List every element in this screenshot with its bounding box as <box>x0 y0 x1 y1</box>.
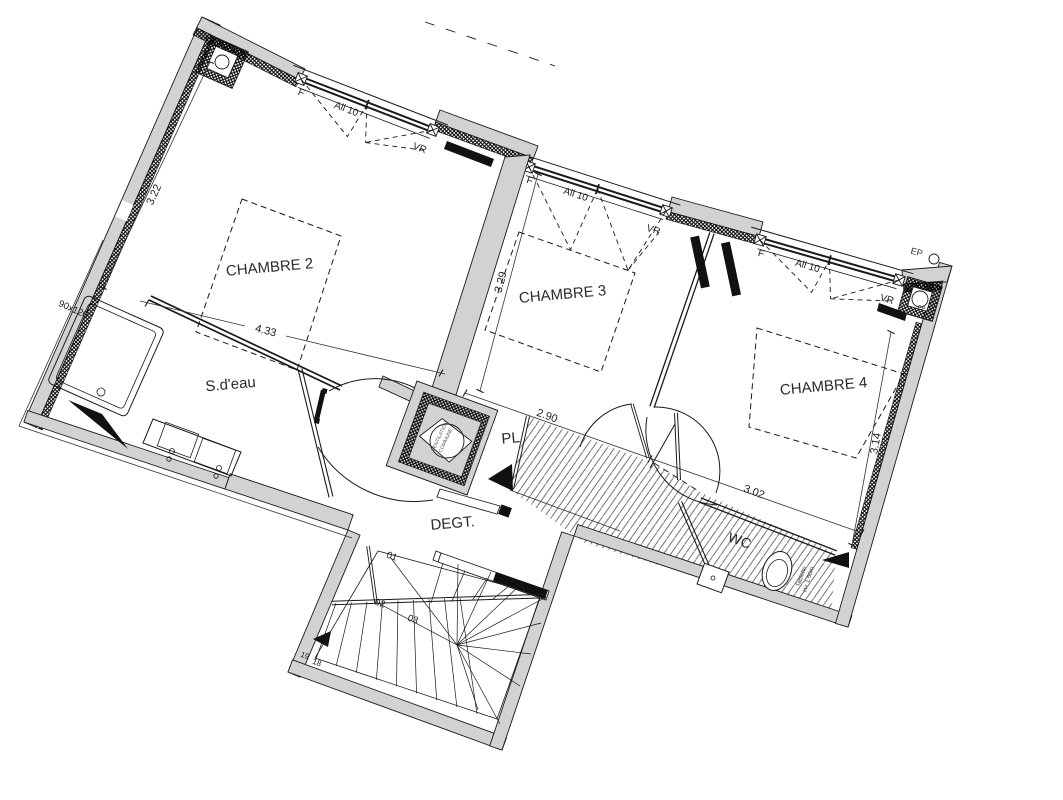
svg-text:PL: PL <box>501 429 521 448</box>
